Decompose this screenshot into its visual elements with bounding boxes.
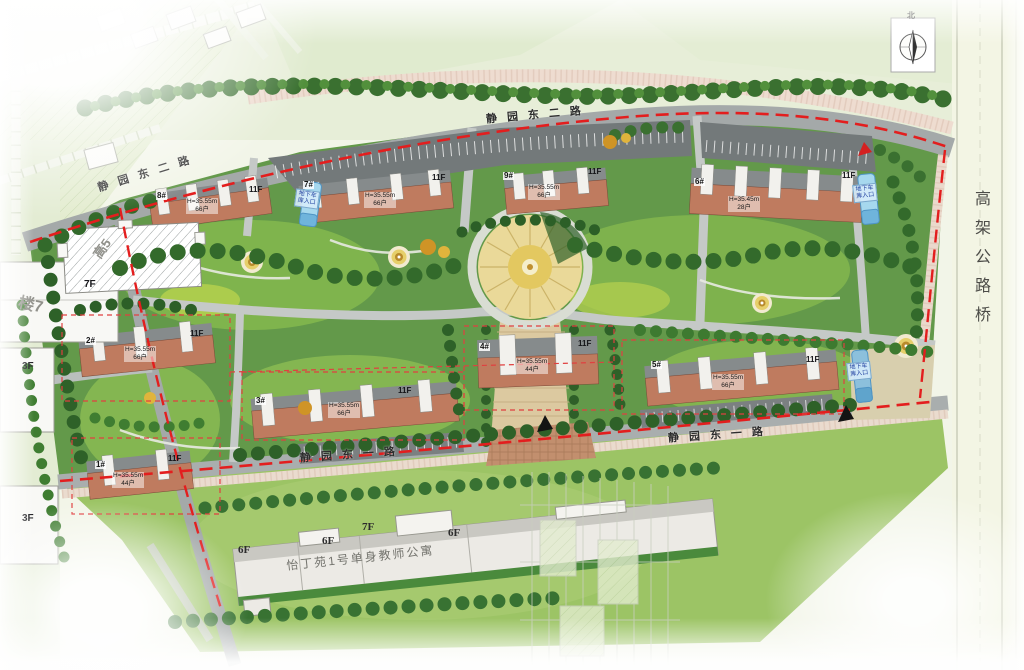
building-3-height: H=35.55m (329, 402, 359, 410)
building-7-units: 66户 (365, 200, 395, 208)
building-4-height: H=35.55m (517, 358, 547, 366)
building-5-height: H=35.55m (713, 374, 743, 382)
building-1-number: 1# (95, 461, 106, 469)
garage-entrance-label-east: 地下车 库入口 (852, 183, 878, 203)
building-5-number: 5# (651, 361, 662, 369)
building-1-floors: 11F (168, 455, 181, 463)
building-2-spec: H=35.55m 66户 (124, 346, 156, 362)
garage-entrance-line2: 库入口 (850, 370, 869, 379)
building-7-spec: H=35.55m 66户 (364, 192, 396, 208)
building-7-number: 7# (303, 181, 314, 189)
building-5-floors: 11F (806, 356, 819, 364)
building-8-number: 8# (156, 192, 167, 200)
building-6-spec: H=35.45m 28户 (728, 196, 760, 212)
building-3-number: 3# (255, 397, 266, 405)
elevated-highway-bridge-label: 高架公路桥 (972, 190, 988, 335)
building-7-floors: 11F (432, 174, 445, 182)
building-9-spec: H=35.55m 66户 (528, 184, 560, 200)
apartment-floor-tag-2: 6F (322, 536, 334, 547)
garage-entrance-line2: 库入口 (297, 198, 316, 207)
garage-entrance-label-west: 地下车 库入口 (294, 188, 320, 209)
offsite-7f-label: 7F (84, 280, 96, 290)
building-9-height: H=35.55m (529, 184, 559, 192)
garage-entrance-line2: 库入口 (856, 192, 875, 201)
offsite-3f-label-b: 3F (22, 514, 34, 524)
building-8-spec: H=35.55m 66户 (186, 198, 218, 214)
building-3-spec: H=35.55m 66户 (328, 402, 360, 418)
building-4-floors: 11F (578, 340, 591, 348)
building-9-floors: 11F (588, 168, 601, 176)
building-6-units: 28户 (729, 204, 759, 212)
building-1-spec: H=35.55m 44户 (112, 472, 144, 488)
building-7-height: H=35.55m (365, 192, 395, 200)
building-2-number: 2# (85, 337, 96, 345)
building-2-height: H=35.55m (125, 346, 155, 354)
building-2-floors: 11F (190, 330, 203, 338)
building-1-units: 44户 (113, 480, 143, 488)
building-9-number: 9# (503, 172, 514, 180)
building-2-units: 66户 (125, 354, 155, 362)
plan-artwork (0, 0, 1024, 670)
building-3-floors: 11F (398, 387, 411, 395)
building-6-floors: 11F (842, 172, 855, 180)
building-4-spec: H=35.55m 44户 (516, 358, 548, 374)
building-9-units: 66户 (529, 192, 559, 200)
building-6-number: 6# (694, 178, 705, 186)
building-4-units: 44户 (517, 366, 547, 374)
building-5-units: 66户 (713, 382, 743, 390)
north-arrow-icon (891, 18, 935, 72)
building-4-number: 4# (479, 343, 490, 351)
building-5-spec: H=35.55m 66户 (712, 374, 744, 390)
north-label: 北 (907, 12, 915, 20)
offsite-3f-label-a: 3F (22, 362, 34, 372)
apartment-floor-tag-1: 6F (238, 545, 250, 556)
building-3-units: 66户 (329, 410, 359, 418)
building-8-height: H=35.55m (187, 198, 217, 206)
building-1-height: H=35.55m (113, 472, 143, 480)
garage-entrance-label-southeast: 地下车 库入口 (846, 361, 872, 381)
apartment-floor-tag-3: 7F (362, 522, 374, 533)
building-6-height: H=35.45m (729, 196, 759, 204)
apartment-floor-tag-4: 6F (448, 528, 460, 539)
building-8-floors: 11F (249, 186, 262, 194)
building-8-units: 66户 (187, 206, 217, 214)
site-plan-canvas: 静园东二路 静园东二路 静园东一路 静园东一路 高架公路桥 北 8# 7# 9#… (0, 0, 1024, 670)
